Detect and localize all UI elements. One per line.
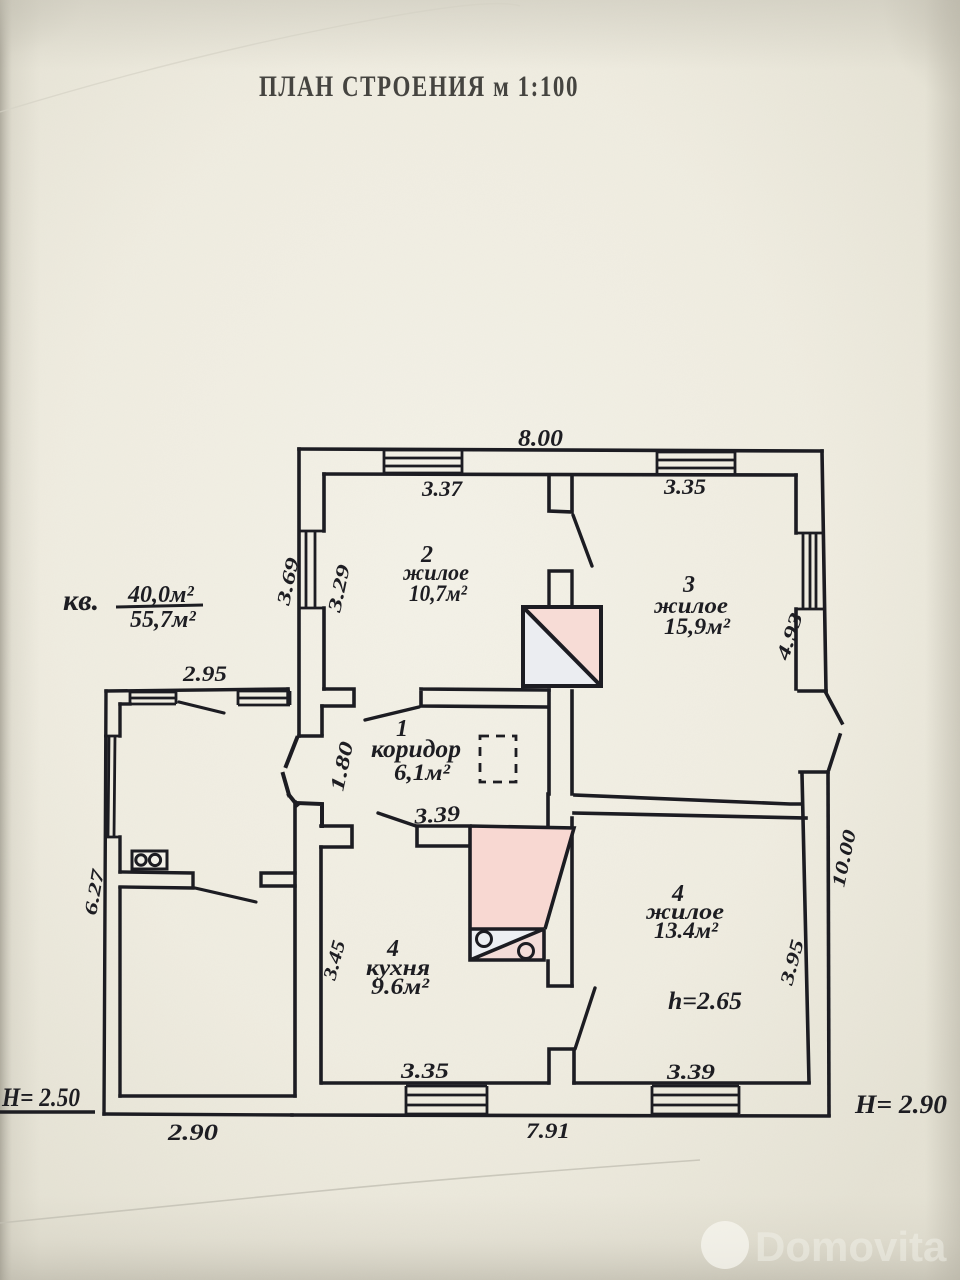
svg-text:10,7м²: 10,7м² [409,581,468,606]
svg-text:Domovita: Domovita [755,1223,947,1270]
svg-text:3.35: 3.35 [663,474,706,499]
svg-text:7.91: 7.91 [526,1118,570,1143]
svg-text:3.37: 3.37 [421,476,463,501]
svg-text:3.35: 3.35 [400,1058,449,1083]
svg-text:2.90: 2.90 [167,1120,219,1145]
svg-text:3.39: 3.39 [412,800,461,828]
svg-text:Н= 2.50: Н= 2.50 [1,1083,80,1112]
svg-text:2.95: 2.95 [182,661,227,686]
svg-text:13.4м²: 13.4м² [654,918,719,943]
svg-text:6,1м²: 6,1м² [394,760,451,785]
svg-text:ПЛАН СТРОЕНИЯ м 1:100: ПЛАН СТРОЕНИЯ м 1:100 [259,70,579,103]
svg-text:8.00: 8.00 [518,426,563,452]
svg-text:h=2.65: h=2.65 [668,988,742,1015]
svg-text:кв.: кв. [63,584,99,617]
svg-text:15,9м²: 15,9м² [664,614,731,639]
svg-text:3.39: 3.39 [666,1059,715,1084]
svg-text:9.6м²: 9.6м² [371,974,430,999]
svg-text:55,7м²: 55,7м² [130,607,196,633]
svg-text:Н= 2.90: Н= 2.90 [854,1090,947,1119]
svg-text:коридор: коридор [371,736,461,763]
